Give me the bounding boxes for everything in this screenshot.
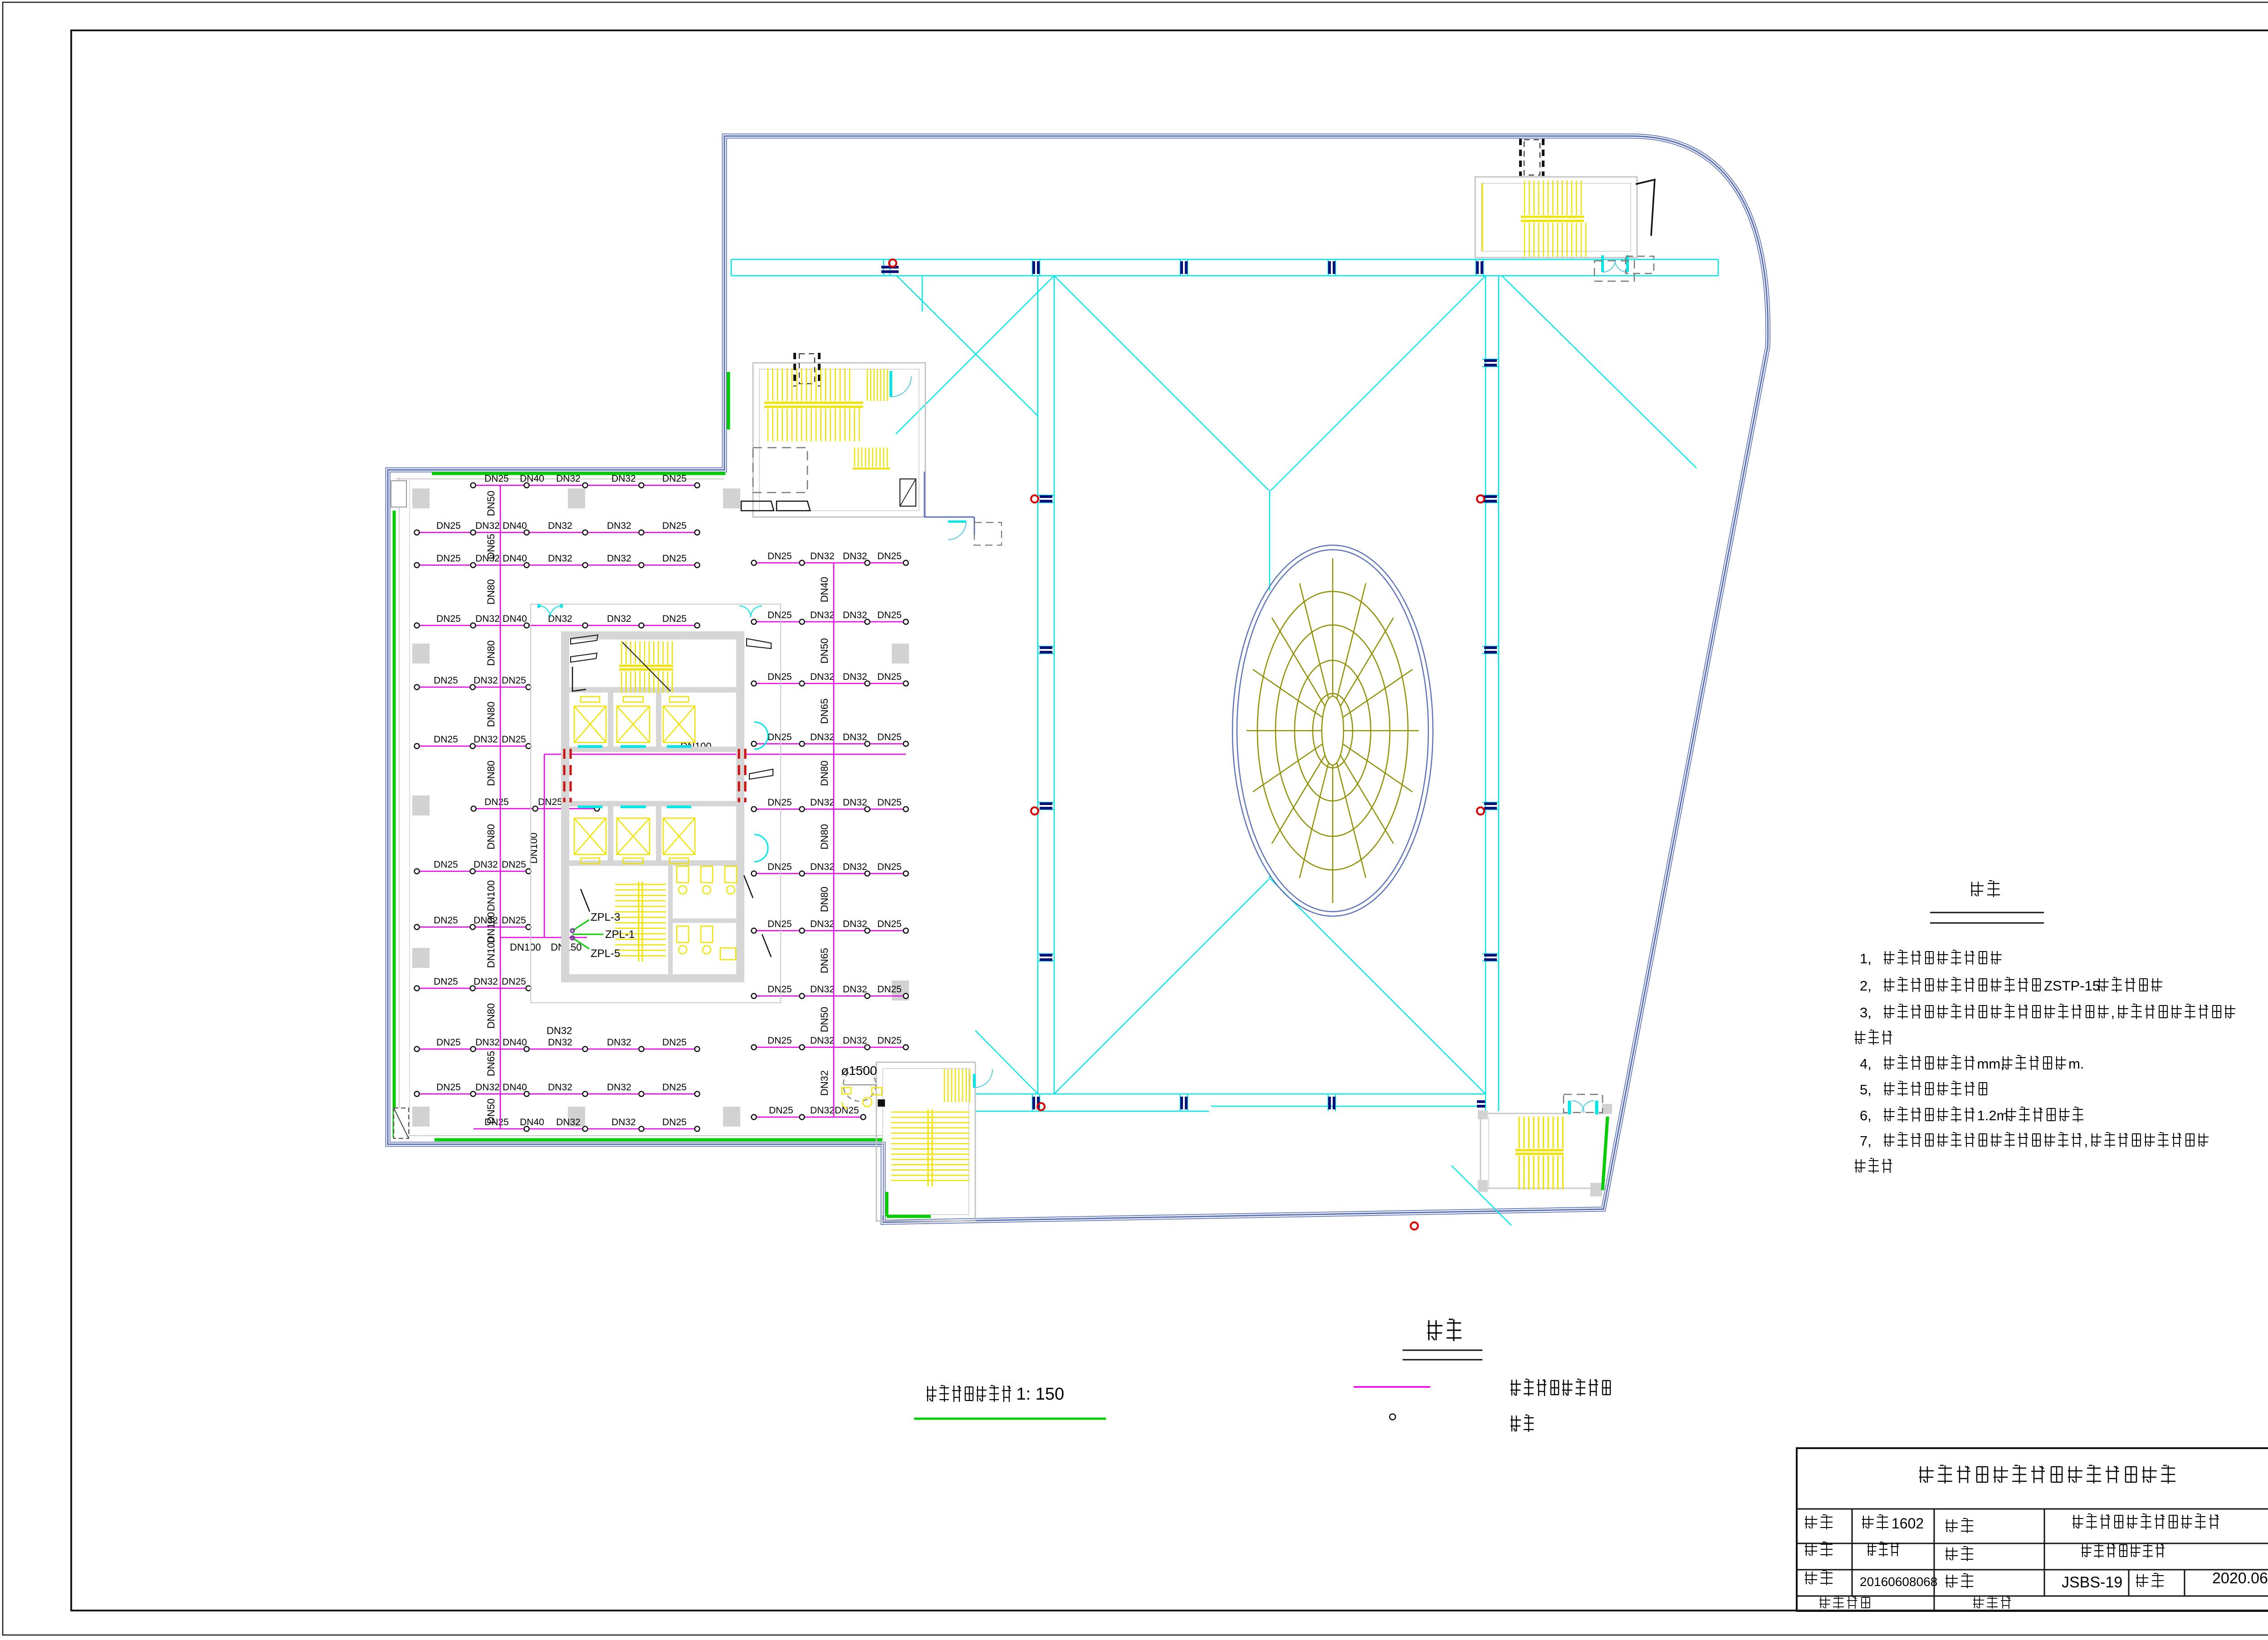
svg-text:DN32: DN32 — [475, 614, 500, 624]
svg-text:DN25: DN25 — [502, 915, 526, 926]
svg-text:DN32: DN32 — [474, 675, 498, 686]
svg-text:DN32: DN32 — [843, 732, 867, 742]
svg-text:DN32: DN32 — [547, 1025, 572, 1036]
svg-text:DN25: DN25 — [434, 976, 458, 987]
svg-text:DN25: DN25 — [434, 734, 458, 745]
svg-text:DN32: DN32 — [810, 984, 835, 995]
svg-text:DN65: DN65 — [485, 1051, 497, 1076]
svg-text:DN25: DN25 — [767, 984, 792, 995]
svg-text:DN25: DN25 — [767, 1035, 792, 1046]
svg-text:DN25: DN25 — [767, 919, 792, 929]
svg-text:DN32: DN32 — [843, 551, 867, 561]
svg-text:DN32: DN32 — [548, 553, 572, 564]
svg-text:JSBS-19: JSBS-19 — [2062, 1574, 2122, 1591]
svg-text:DN32: DN32 — [548, 1082, 572, 1093]
svg-text:DN40: DN40 — [503, 614, 527, 624]
svg-text:7,: 7, — [1860, 1133, 1872, 1149]
svg-text:1: 150: 1: 150 — [1017, 1385, 1065, 1404]
svg-text:1602: 1602 — [1892, 1515, 1924, 1532]
svg-text:1,: 1, — [1860, 951, 1872, 966]
svg-text:DN32: DN32 — [843, 984, 867, 995]
svg-text:DN80: DN80 — [485, 579, 497, 605]
svg-text:DN25: DN25 — [436, 1082, 461, 1093]
svg-text:DN32: DN32 — [843, 1035, 867, 1046]
svg-text:DN80: DN80 — [819, 761, 830, 786]
svg-text:DN32: DN32 — [475, 521, 500, 531]
svg-text:DN25: DN25 — [767, 797, 792, 808]
svg-text:DN65: DN65 — [485, 534, 497, 559]
svg-text:DN25: DN25 — [436, 1037, 461, 1048]
svg-text:DN25: DN25 — [767, 732, 792, 742]
svg-text:DN25: DN25 — [502, 734, 526, 745]
svg-text:DN25: DN25 — [662, 1117, 687, 1127]
svg-text:DN25: DN25 — [877, 984, 902, 995]
svg-text:,: , — [2084, 1133, 2088, 1149]
svg-text:DN80: DN80 — [485, 702, 497, 727]
svg-text:DN32: DN32 — [556, 473, 581, 484]
svg-text:,: , — [2111, 1005, 2115, 1020]
svg-text:DN25: DN25 — [662, 521, 687, 531]
svg-text:DN40: DN40 — [503, 521, 527, 531]
svg-text:DN32: DN32 — [810, 919, 835, 929]
svg-text:DN25: DN25 — [877, 862, 902, 872]
svg-text:DN25: DN25 — [767, 610, 792, 620]
svg-text:mm,: mm, — [1977, 1056, 2004, 1072]
svg-text:DN40: DN40 — [520, 1117, 544, 1127]
svg-text:DN25: DN25 — [767, 551, 792, 561]
svg-text:DN25: DN25 — [484, 797, 509, 807]
svg-text:2020.06: 2020.06 — [2212, 1570, 2268, 1587]
svg-text:DN100: DN100 — [485, 912, 497, 943]
svg-text:DN80: DN80 — [485, 824, 497, 849]
svg-text:DN25: DN25 — [769, 1105, 793, 1116]
svg-text:DN40: DN40 — [819, 577, 830, 602]
svg-text:DN65: DN65 — [819, 698, 830, 724]
svg-text:DN25: DN25 — [877, 672, 902, 682]
svg-text:DN25: DN25 — [436, 521, 461, 531]
svg-text:DN32: DN32 — [548, 1037, 572, 1048]
svg-text:DN80: DN80 — [819, 887, 830, 912]
svg-text:DN80: DN80 — [485, 1003, 497, 1029]
svg-text:DN100: DN100 — [510, 942, 541, 953]
svg-text:DN25: DN25 — [538, 797, 562, 807]
svg-text:DN32: DN32 — [611, 473, 636, 484]
svg-text:DN32: DN32 — [819, 1070, 830, 1096]
svg-text:DN25: DN25 — [484, 473, 509, 484]
svg-text:DN25: DN25 — [434, 859, 458, 870]
svg-text:DN50: DN50 — [485, 1098, 497, 1124]
svg-text:DN32: DN32 — [607, 1037, 631, 1048]
svg-text:DN32: DN32 — [607, 553, 631, 564]
svg-text:DN40: DN40 — [520, 473, 544, 484]
svg-text:DN32: DN32 — [474, 976, 498, 987]
svg-text:DN32: DN32 — [607, 614, 631, 624]
svg-text:DN32: DN32 — [474, 734, 498, 745]
svg-text:DN32: DN32 — [843, 919, 867, 929]
svg-text:DN32: DN32 — [843, 797, 867, 808]
svg-text:DN32: DN32 — [843, 862, 867, 872]
svg-text:DN32: DN32 — [810, 797, 835, 808]
svg-text:DN50: DN50 — [485, 491, 497, 516]
svg-text:DN32: DN32 — [810, 732, 835, 742]
svg-text:DN25: DN25 — [662, 553, 687, 564]
svg-text:DN25: DN25 — [662, 614, 687, 624]
svg-text:DN25: DN25 — [436, 614, 461, 624]
svg-text:DN25: DN25 — [877, 732, 902, 742]
svg-text:DN32: DN32 — [810, 1035, 835, 1046]
svg-text:DN25: DN25 — [434, 915, 458, 926]
svg-text:DN25: DN25 — [502, 675, 526, 686]
svg-text:ZPL-3: ZPL-3 — [591, 911, 620, 923]
svg-text:DN32: DN32 — [843, 672, 867, 682]
svg-text:5,: 5, — [1860, 1082, 1872, 1098]
svg-text:DN32: DN32 — [611, 1117, 636, 1127]
svg-text:20160608068: 20160608068 — [1860, 1575, 1937, 1589]
svg-text:DN100: DN100 — [528, 833, 539, 864]
svg-text:DN25: DN25 — [436, 553, 461, 564]
svg-text:ZPL-5: ZPL-5 — [591, 947, 620, 960]
svg-text:DN25: DN25 — [662, 473, 687, 484]
svg-text:3,: 3, — [1860, 1005, 1872, 1020]
svg-text:DN40: DN40 — [503, 553, 527, 564]
svg-text:DN32: DN32 — [556, 1117, 581, 1127]
svg-text:DN80: DN80 — [819, 824, 830, 849]
svg-text:DN25: DN25 — [877, 797, 902, 808]
svg-text:4,: 4, — [1860, 1056, 1872, 1072]
svg-text:DN50: DN50 — [819, 638, 830, 664]
svg-text:2,: 2, — [1860, 978, 1872, 994]
svg-text:DN32: DN32 — [474, 859, 498, 870]
svg-text:DN32: DN32 — [810, 610, 835, 620]
svg-text:DN25: DN25 — [767, 672, 792, 682]
svg-text:DN32: DN32 — [810, 1105, 835, 1116]
svg-text:DN25: DN25 — [502, 859, 526, 870]
svg-text:DN40: DN40 — [503, 1037, 527, 1048]
svg-text:DN100: DN100 — [485, 880, 497, 911]
svg-text:DN32: DN32 — [548, 521, 572, 531]
svg-text:ø1500: ø1500 — [841, 1064, 877, 1078]
svg-text:DN32: DN32 — [810, 672, 835, 682]
svg-text:DN32: DN32 — [548, 614, 572, 624]
svg-text:1.2m: 1.2m — [1977, 1108, 2009, 1123]
svg-text:DN32: DN32 — [810, 862, 835, 872]
svg-text:DN80: DN80 — [485, 761, 497, 786]
svg-text:6,: 6, — [1860, 1108, 1872, 1123]
svg-text:DN80: DN80 — [485, 640, 497, 666]
svg-text:DN25: DN25 — [434, 675, 458, 686]
svg-text:DN25: DN25 — [662, 1082, 687, 1093]
svg-text:DN25: DN25 — [877, 551, 902, 561]
svg-text:DN25: DN25 — [877, 1035, 902, 1046]
svg-text:DN50: DN50 — [819, 1007, 830, 1032]
svg-text:ZSTP-15: ZSTP-15 — [2044, 978, 2100, 994]
svg-text:DN25: DN25 — [835, 1105, 859, 1116]
svg-text:DN25: DN25 — [877, 610, 902, 620]
svg-text:DN40: DN40 — [503, 1082, 527, 1093]
svg-text:DN65: DN65 — [819, 948, 830, 973]
svg-text:DN32: DN32 — [810, 551, 835, 561]
svg-text:DN25: DN25 — [767, 862, 792, 872]
svg-text:DN32: DN32 — [843, 610, 867, 620]
svg-text:DN32: DN32 — [475, 1082, 500, 1093]
svg-text:DN25: DN25 — [662, 1037, 687, 1048]
svg-text:DN25: DN25 — [877, 919, 902, 929]
svg-text:m.: m. — [2068, 1056, 2084, 1072]
svg-text:DN32: DN32 — [607, 1082, 631, 1093]
svg-text:DN25: DN25 — [502, 976, 526, 987]
svg-text:DN32: DN32 — [475, 1037, 500, 1048]
svg-text:DN32: DN32 — [607, 521, 631, 531]
svg-text:ZPL-1: ZPL-1 — [605, 928, 635, 941]
